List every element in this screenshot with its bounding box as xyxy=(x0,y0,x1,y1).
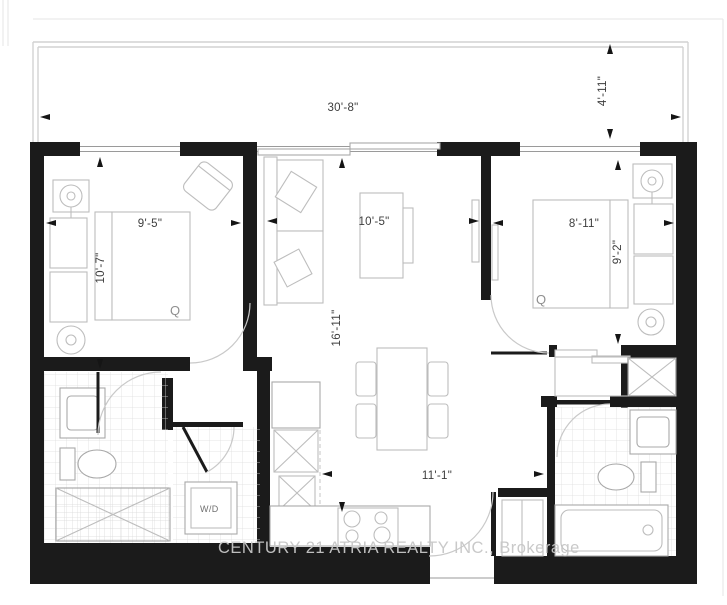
bed1-label: Q xyxy=(170,303,180,318)
dining-set xyxy=(356,348,448,450)
dim-bedroom1-height: 10'-7" xyxy=(95,157,107,369)
floor-lamp-2 xyxy=(638,309,664,335)
toilet-1 xyxy=(60,448,116,480)
balcony-sliding-door xyxy=(255,143,440,155)
svg-text:9'-5": 9'-5" xyxy=(138,218,162,230)
windows xyxy=(80,143,640,155)
bedroom-1: Q xyxy=(50,160,250,363)
tv-console xyxy=(472,200,479,262)
svg-text:8'-11": 8'-11" xyxy=(569,218,599,230)
svg-text:4'-11": 4'-11" xyxy=(597,76,609,106)
svg-text:16'-11": 16'-11" xyxy=(331,310,343,347)
svg-text:10'-5": 10'-5" xyxy=(358,216,389,228)
washer-dryer-label: W/D xyxy=(200,504,219,514)
dim-bedroom2-height: 9'-2" xyxy=(612,160,624,344)
svg-text:11'-1": 11'-1" xyxy=(422,470,452,482)
dresser-2 xyxy=(634,204,673,304)
sofa xyxy=(264,157,323,305)
dim-living-height: 16'-11" xyxy=(331,158,345,512)
entry-door xyxy=(429,492,496,578)
dim-hall-width: 11'-1" xyxy=(322,470,544,482)
svg-text:30'-8": 30'-8" xyxy=(327,102,358,114)
floor-lamp-1 xyxy=(57,326,85,354)
svg-text:10'-7": 10'-7" xyxy=(95,252,107,283)
bedroom2-tv xyxy=(492,225,498,280)
dim-balcony-width: 30'-8" xyxy=(40,102,681,120)
armchair xyxy=(181,160,235,213)
balcony xyxy=(33,42,688,142)
floor-plan: Q xyxy=(0,0,727,605)
bedroom-2: Q xyxy=(491,164,676,396)
bedroom2-window xyxy=(520,147,640,152)
utility-closet xyxy=(628,358,676,396)
bathroom-2 xyxy=(555,400,676,556)
shower xyxy=(56,488,170,541)
floor-plan-drawing: Q xyxy=(0,0,727,605)
dim-balcony-depth: 4'-11" xyxy=(597,44,613,139)
svg-text:9'-2": 9'-2" xyxy=(612,240,624,264)
toilet-2 xyxy=(598,462,656,492)
fridge xyxy=(272,382,320,428)
coffee-table xyxy=(360,193,413,278)
bedroom2-closet xyxy=(555,350,630,396)
bed2-label: Q xyxy=(536,292,546,307)
vanity-2 xyxy=(630,410,676,454)
laundry-closet: W/D xyxy=(173,427,260,543)
bedroom1-door xyxy=(190,303,250,363)
upper-cabinets xyxy=(274,430,318,510)
bathroom-1 xyxy=(44,372,170,543)
watermark: CENTURY 21 ATRIA REALTY INC., Brokerage xyxy=(218,539,580,557)
dresser-1 xyxy=(50,218,87,322)
bedroom1-window xyxy=(80,147,180,152)
